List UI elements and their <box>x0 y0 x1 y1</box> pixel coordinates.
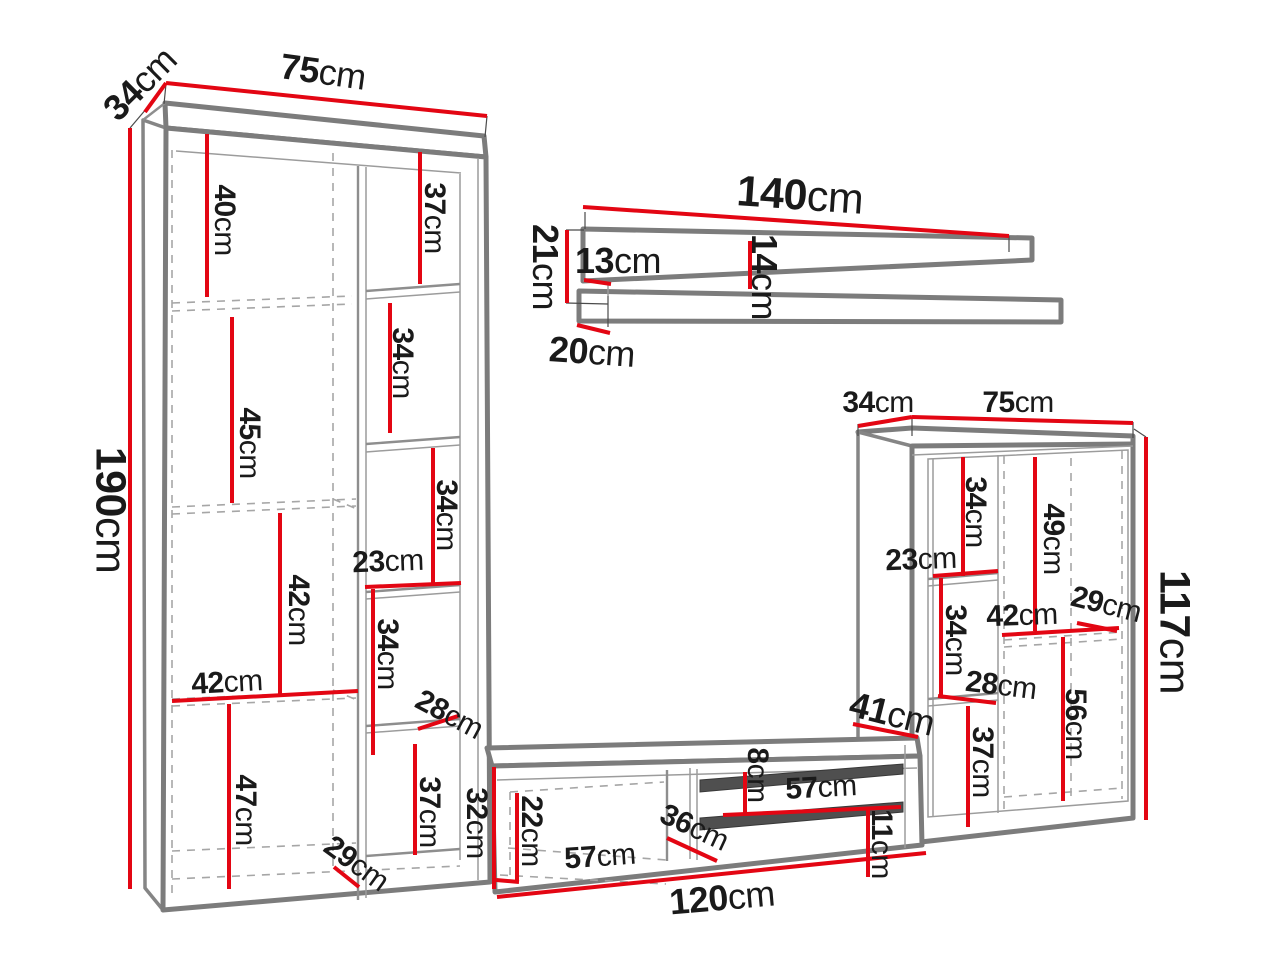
tv-stand-drawing <box>487 724 926 897</box>
dim-left-rcol-compartment-4: 34cm <box>372 618 402 689</box>
dim-tv-stand-shelf-gap: 8cm <box>742 747 772 802</box>
dim-wall-shelf-width: 140cm <box>735 170 864 222</box>
furniture-dimension-diagram: 34cm 75cm 190cm 40cm 45cm 42cm 42cm 47cm… <box>0 0 1280 960</box>
dim-tv-stand-width: 120cm <box>668 875 776 920</box>
dim-right-cabinet-depth: 34cm <box>842 388 913 418</box>
dim-right-lcol-compartment-1: 34cm <box>960 476 990 547</box>
furniture-line-drawing <box>0 0 1280 960</box>
dim-right-lcol-inner-width: 23cm <box>885 544 957 576</box>
dim-left-col-inner-width: 42cm <box>191 666 264 700</box>
dim-wall-shelf-mid-height: 14cm <box>746 234 782 320</box>
dim-right-lcol-compartment-3: 37cm <box>967 726 997 797</box>
dim-left-col-compartment-1: 40cm <box>209 184 239 255</box>
dim-tv-stand-bottom-gap: 11cm <box>866 809 896 879</box>
dim-tv-stand-niche-width: 57cm <box>785 771 858 805</box>
dim-left-rcol-compartment-1: 37cm <box>419 182 449 253</box>
dim-wall-shelf-depth: 20cm <box>548 331 636 373</box>
dim-left-col-compartment-3: 42cm <box>283 574 313 645</box>
dim-left-rcol-inner-width: 23cm <box>352 546 424 578</box>
dim-right-rcol-inner-width: 42cm <box>986 600 1058 632</box>
dim-tv-stand-door-width: 57cm <box>563 840 636 875</box>
dim-left-col-compartment-4: 47cm <box>230 774 260 845</box>
wall-shelf-bottom-board <box>579 291 1061 322</box>
dim-left-cabinet-height: 190cm <box>89 447 132 574</box>
dim-left-rcol-compartment-5: 37cm <box>414 776 444 847</box>
dim-left-rcol-compartment-3: 34cm <box>431 479 461 550</box>
dim-tv-stand-height: 32cm <box>461 787 491 858</box>
dim-right-rcol-compartment-1: 49cm <box>1038 503 1068 574</box>
dim-left-rcol-compartment-2: 34cm <box>387 327 417 398</box>
dim-right-cabinet-height: 117cm <box>1153 570 1196 694</box>
dim-wall-shelf-lip-height: 13cm <box>575 243 661 279</box>
dim-right-lcol-compartment-2: 34cm <box>940 604 970 675</box>
dim-wall-shelf-height: 21cm <box>527 224 563 310</box>
dim-right-cabinet-width: 75cm <box>982 388 1053 418</box>
dim-tv-stand-inner-height: 22cm <box>516 795 546 866</box>
dim-left-col-compartment-2: 45cm <box>234 407 264 478</box>
dim-right-rcol-compartment-2: 56cm <box>1060 688 1090 759</box>
